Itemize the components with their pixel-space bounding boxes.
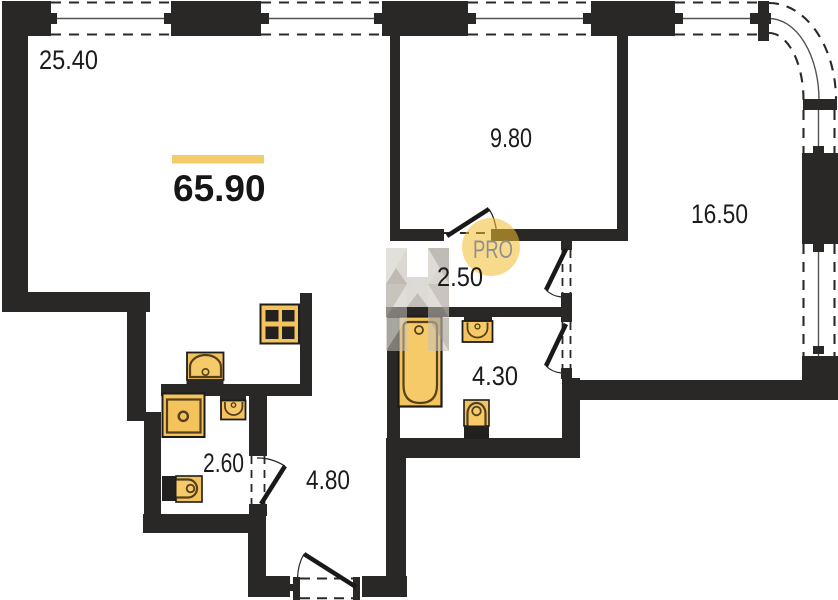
svg-text:9.80: 9.80 [490, 123, 532, 153]
svg-text:25.40: 25.40 [39, 45, 98, 75]
svg-text:2.50: 2.50 [437, 262, 483, 292]
svg-text:PRO: PRO [473, 236, 513, 264]
svg-text:4.30: 4.30 [472, 361, 518, 391]
svg-text:16.50: 16.50 [691, 199, 748, 229]
svg-text:4.80: 4.80 [306, 465, 350, 495]
svg-text:65.90: 65.90 [173, 168, 266, 209]
svg-text:2.60: 2.60 [203, 448, 244, 478]
